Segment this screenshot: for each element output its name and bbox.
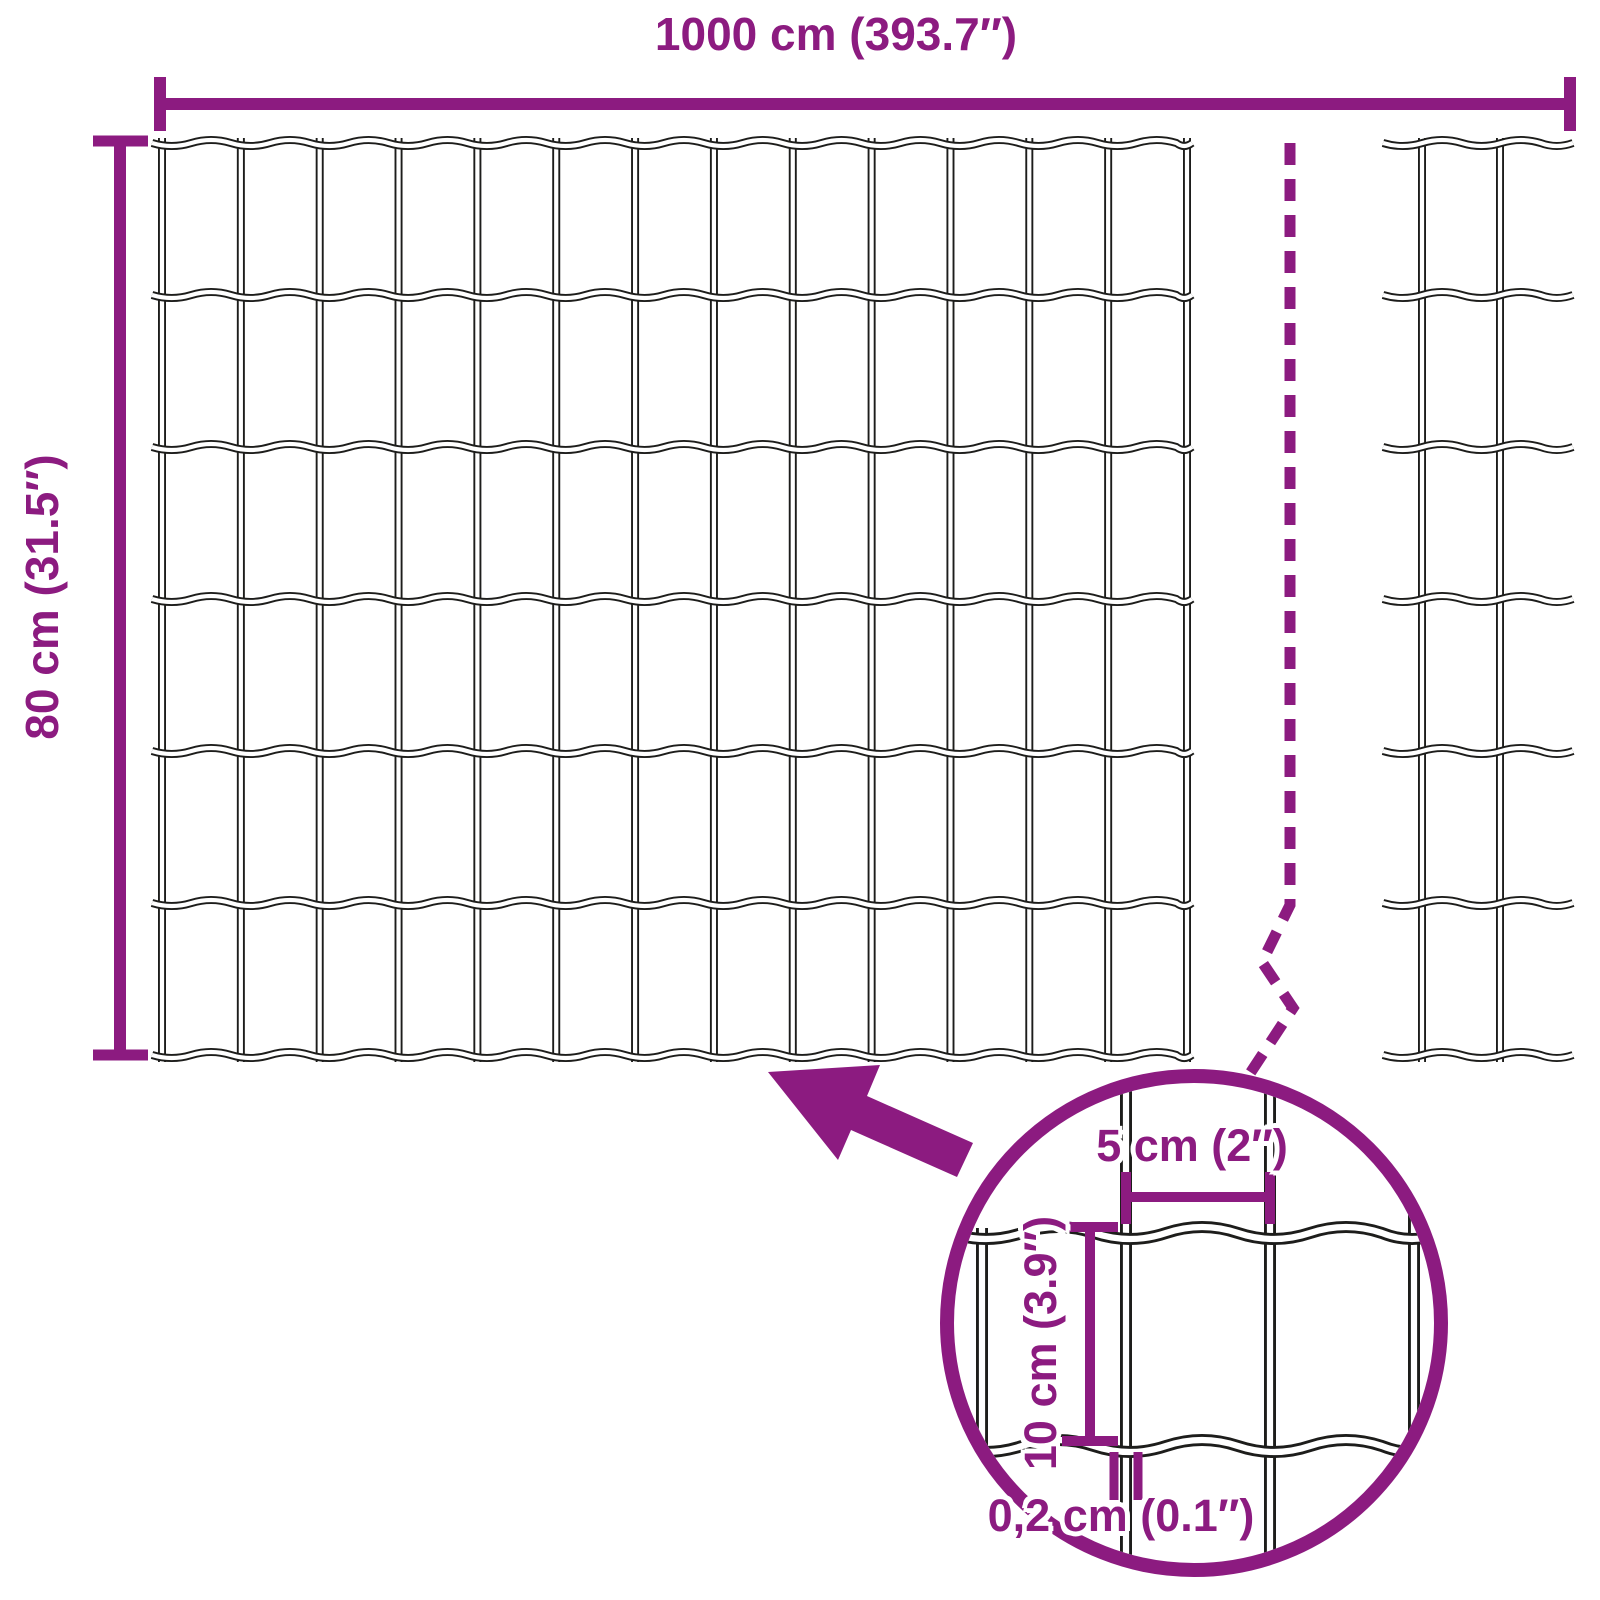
width-dimension-line: [160, 77, 1570, 131]
mesh-height-label: 10 cm (3.9″): [1015, 1216, 1067, 1470]
fence-dimension-diagram: 1000 cm (393.7″) 80 cm (31.5″) 5 cm (2″)…: [0, 0, 1600, 1600]
mesh-width-label: 5 cm (2″): [1096, 1120, 1288, 1172]
mesh-panel-main: [152, 138, 1192, 1062]
zoom-arrow-icon: [768, 1065, 973, 1177]
total-width-label: 1000 cm (393.7″): [655, 7, 1017, 61]
wire-thickness-label: 0,2 cm (0.1″): [988, 1490, 1255, 1542]
diagram-canvas: [0, 0, 1600, 1600]
break-line: [1247, 143, 1293, 1078]
mesh-panel-right-piece: [1383, 138, 1573, 1062]
total-height-label: 80 cm (31.5″): [15, 454, 69, 739]
height-dimension-line: [93, 141, 148, 1055]
